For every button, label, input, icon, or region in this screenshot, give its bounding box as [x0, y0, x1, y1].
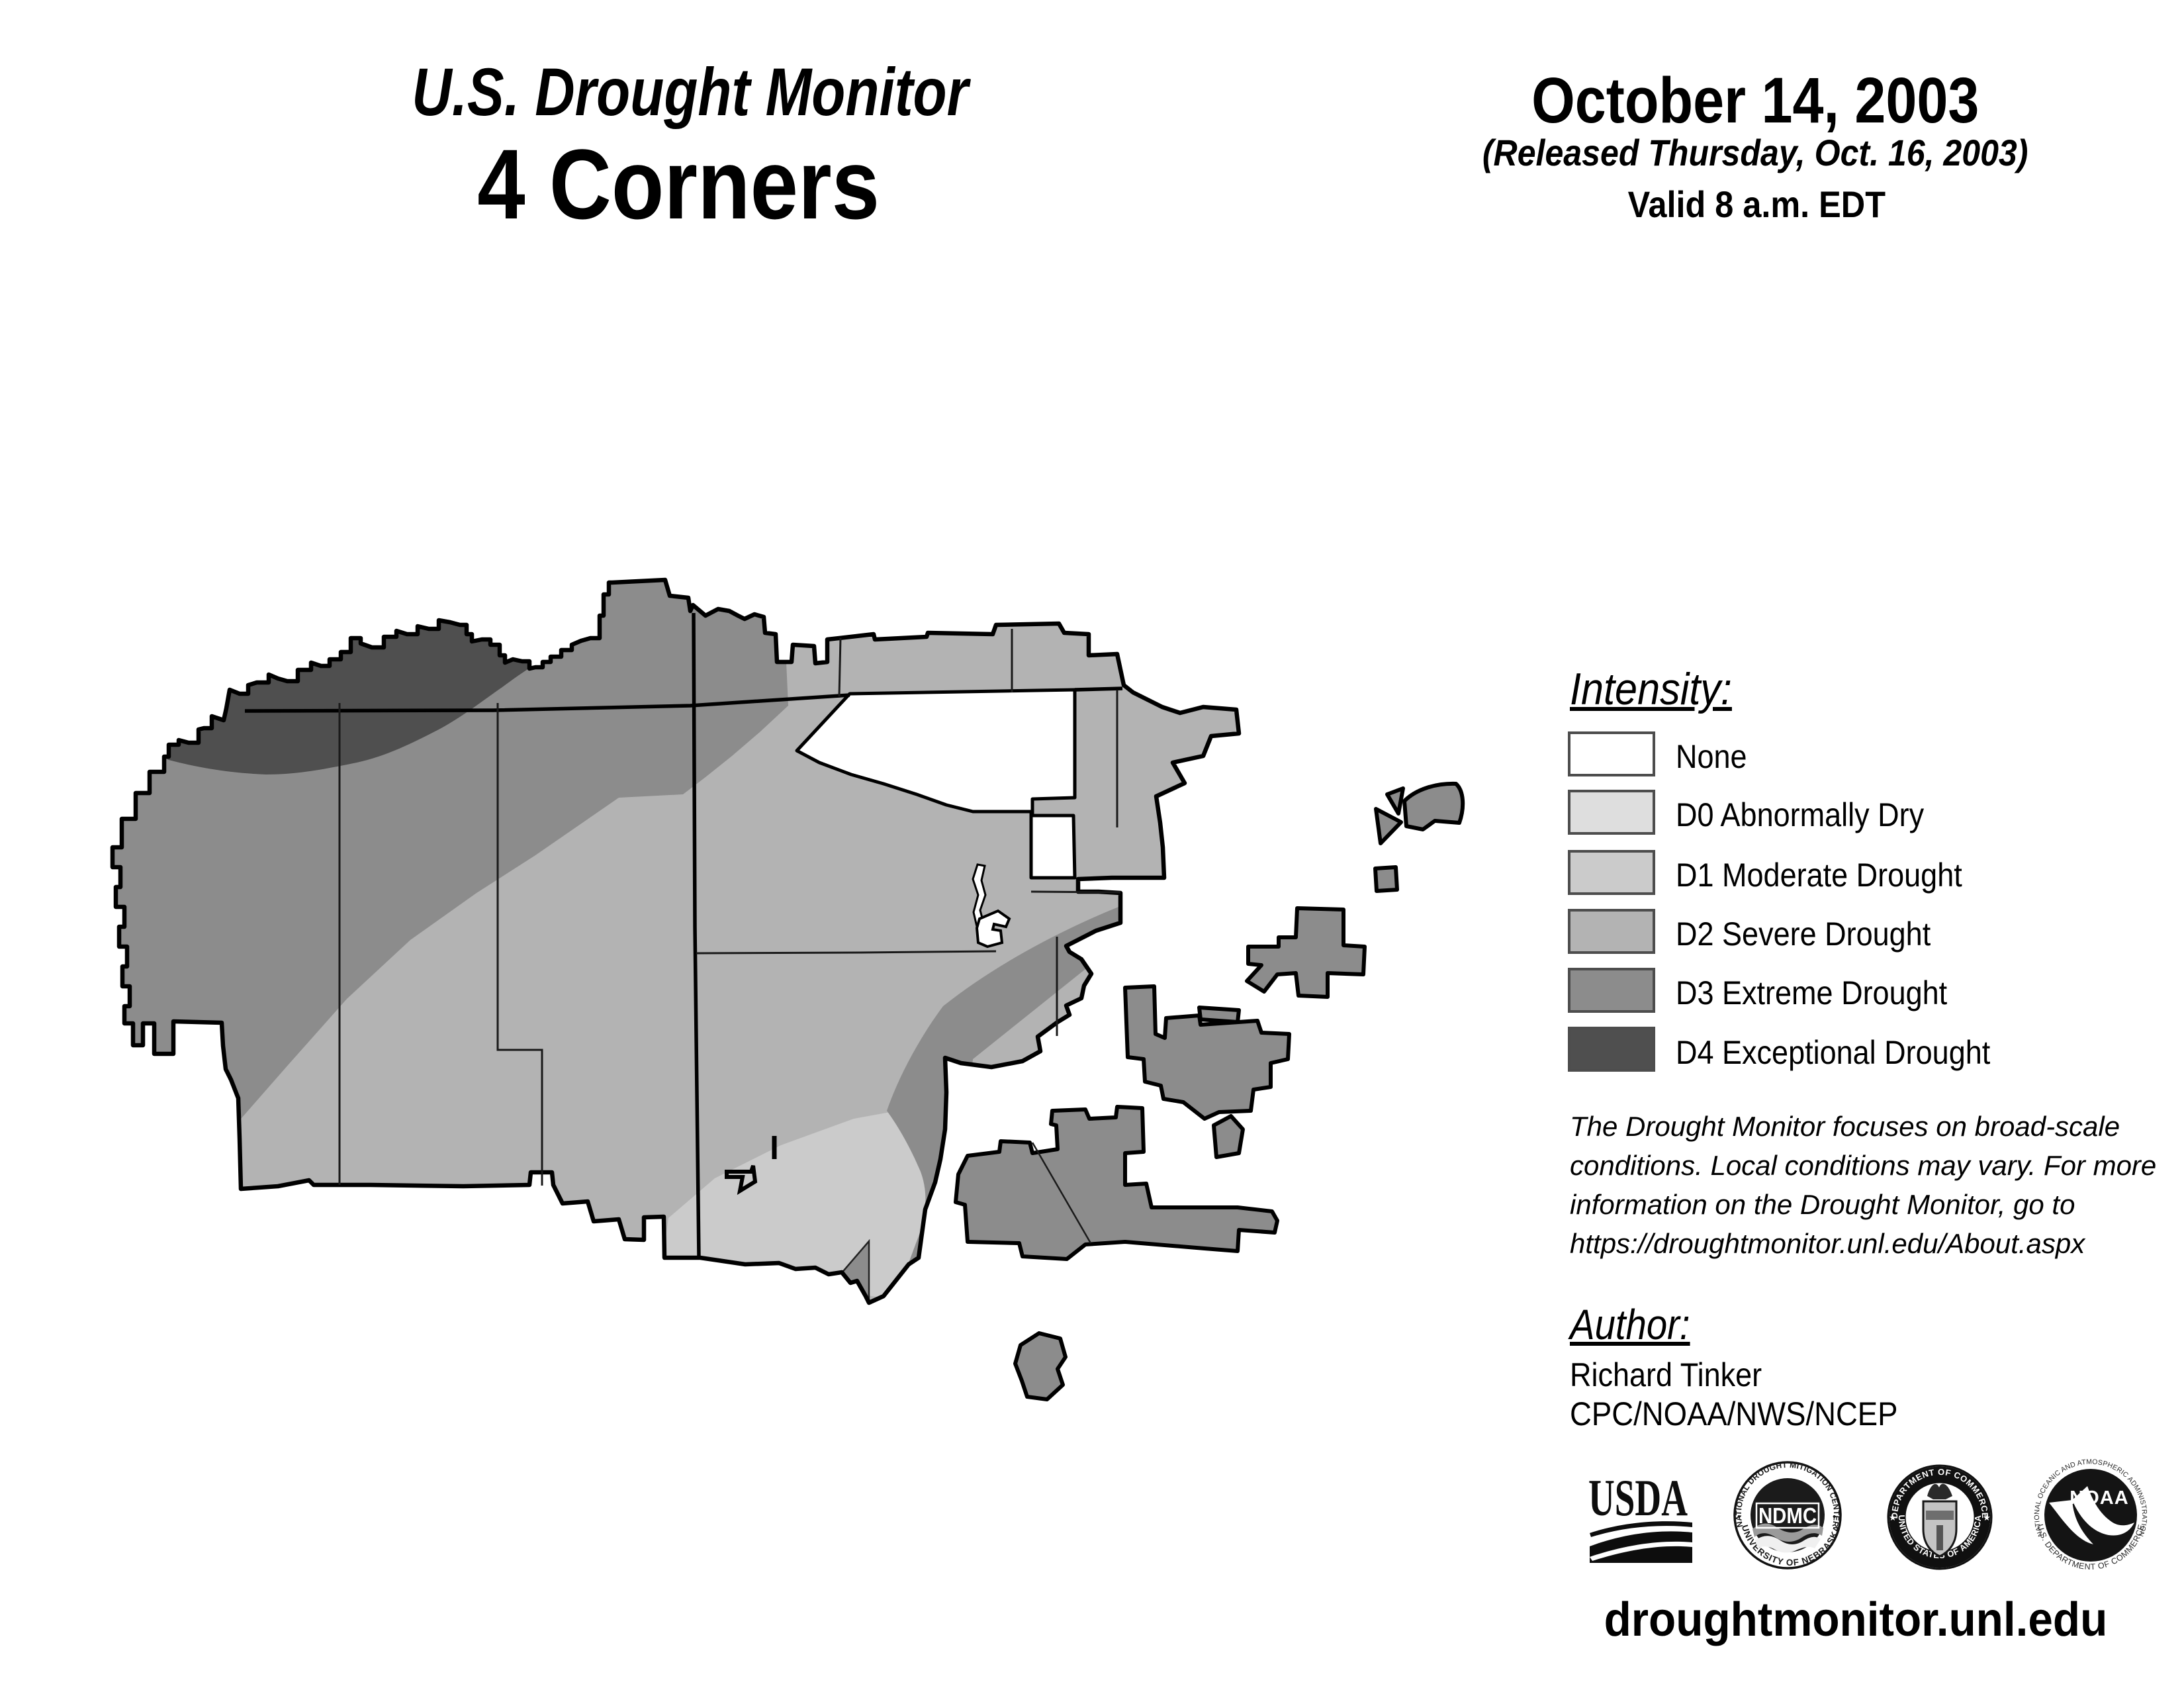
- svg-text:★: ★: [1889, 1513, 1897, 1523]
- svg-text:USDA: USDA: [1588, 1469, 1688, 1526]
- svg-text:•: •: [1833, 1511, 1836, 1523]
- svg-text:•: •: [1737, 1511, 1741, 1523]
- svg-text:NDMC: NDMC: [1758, 1503, 1817, 1528]
- svg-text:NOAA: NOAA: [2070, 1487, 2128, 1509]
- svg-text:★: ★: [1983, 1513, 1991, 1523]
